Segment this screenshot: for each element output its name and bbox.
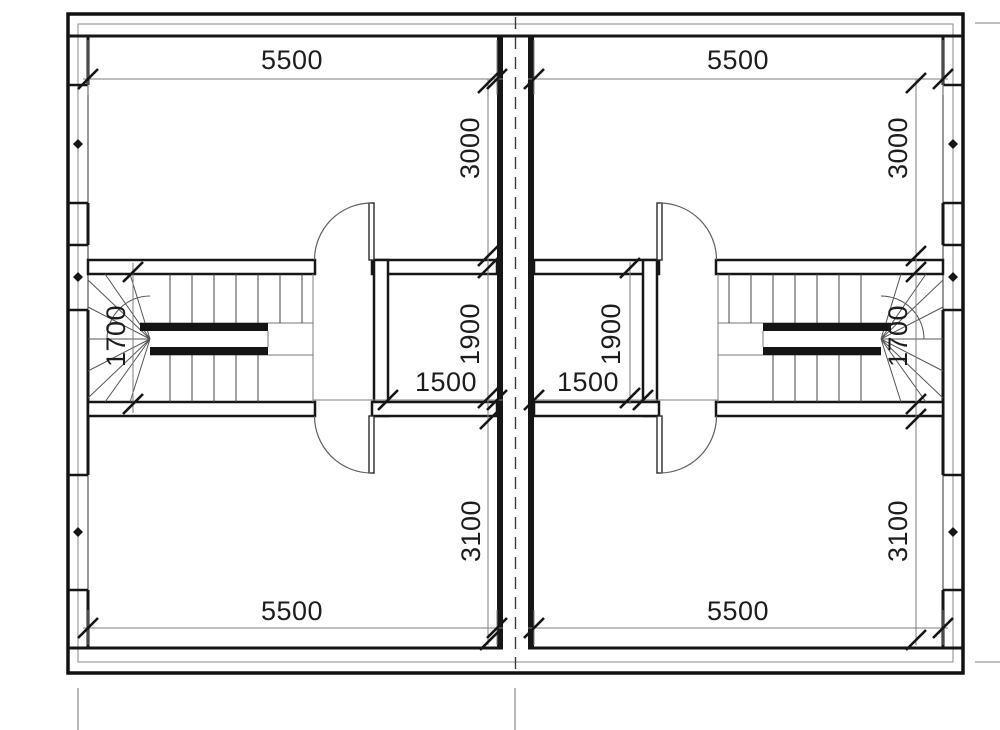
stair-stringer-upper <box>763 323 891 331</box>
stair-stringer-lower <box>150 347 268 355</box>
dim-label-left-closet-width: 1500 <box>415 367 477 397</box>
door-leaf-right-bottom <box>657 416 662 473</box>
dim-label-right-top-width: 5500 <box>707 45 769 75</box>
door-leaf-left-top <box>369 203 374 260</box>
dim-label-right-closet-width: 1500 <box>557 367 619 397</box>
dim-label-right-closet-depth: 1900 <box>596 303 626 365</box>
dim-label-left-stair-depth: 1700 <box>101 305 131 367</box>
dim-label-left-top-depth: 3000 <box>455 117 485 179</box>
door-leaf-right-top <box>657 203 662 260</box>
party-wall-left-leaf <box>497 36 503 648</box>
stair-treads <box>170 274 302 402</box>
party-wall-right-leaf <box>528 36 534 648</box>
dim-label-right-bottom-width: 5500 <box>707 596 769 626</box>
wall-left-lower-band-b <box>372 402 497 416</box>
stair-stringer-upper <box>140 323 268 331</box>
wall-left-upper-band-b <box>372 260 497 274</box>
dim-label-left-top-width: 5500 <box>261 45 323 75</box>
party-wall <box>497 17 534 671</box>
grid-reference-lines <box>78 688 515 730</box>
wall-left-closet-side <box>374 260 388 416</box>
dim-label-left-bottom-width: 5500 <box>261 596 323 626</box>
wall-left-lower-band-a <box>88 402 315 416</box>
dim-label-right-bottom-depth: 3100 <box>883 500 913 562</box>
wall-right-lower-band-a <box>716 402 943 416</box>
door-leaf-left-bottom <box>369 416 374 473</box>
dim-label-right-stair-depth: 1700 <box>883 305 913 367</box>
dim-label-right-top-depth: 3000 <box>883 117 913 179</box>
dim-label-left-closet-depth: 1900 <box>455 303 485 365</box>
floor-plan-drawing: 5500 5500 5500 5500 3000 3000 1900 1900 … <box>0 0 1000 730</box>
dim-label-left-bottom-depth: 3100 <box>456 500 486 562</box>
dimension-lines <box>78 23 1000 730</box>
wall-left-upper-band-a <box>88 260 315 274</box>
wall-right-upper-band-b <box>534 260 659 274</box>
stair-stringer-lower <box>763 347 881 355</box>
dimension-labels: 5500 5500 5500 5500 3000 3000 1900 1900 … <box>101 45 913 626</box>
dimension-thin-lines <box>83 23 1000 662</box>
stair-treads <box>729 274 861 402</box>
floor-plan-page: 5500 5500 5500 5500 3000 3000 1900 1900 … <box>0 0 1000 730</box>
